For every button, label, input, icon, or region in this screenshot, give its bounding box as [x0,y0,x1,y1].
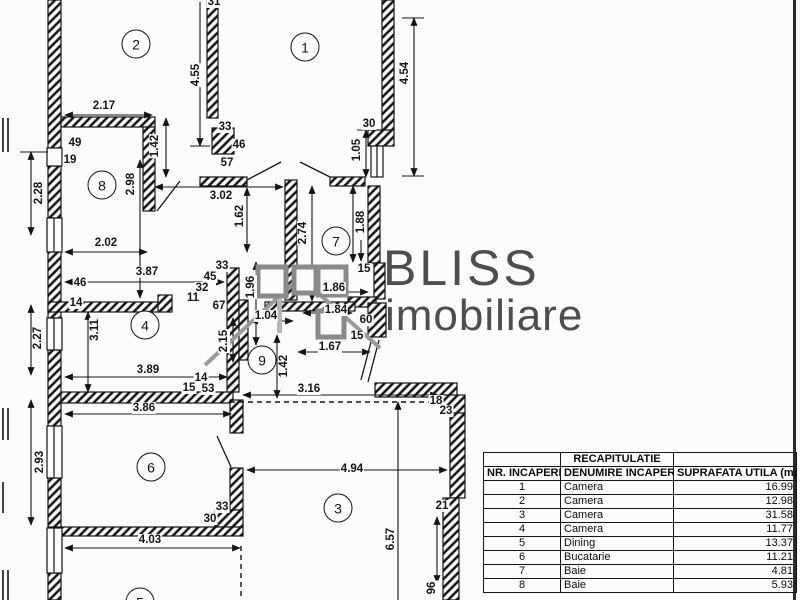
room-area-cell: 16.99 [674,481,797,495]
recap-table-row: 8Baie5.93 [484,579,797,593]
dimension-label: 4.03 [138,534,162,546]
dimension-label: 2.93 [34,450,46,474]
dimension-label: 49 [68,137,83,149]
dimension-label: 60 [359,314,374,326]
room-number-circle: 9 [248,346,277,375]
room-area-cell: 12.98 [674,495,797,509]
room-name-cell: Bucatarie [561,551,674,565]
dimension-label: 53 [201,383,216,395]
dimension-label: 46 [232,139,247,151]
logo-text-imobiliare: imobiliare [385,294,583,338]
dimension-label: 2.17 [92,100,116,112]
recap-table-row: 1Camera16.99 [484,481,797,495]
dimension-label: 21 [435,500,450,512]
room-area-cell: 5.93 [674,579,797,593]
col-header-nr: NR. INCAPERE [484,467,561,481]
dimension-label: 3.02 [209,190,233,202]
dimension-label: 1.96 [245,275,257,299]
dimension-label: 1.86 [322,282,346,294]
dimension-label: 31 [207,0,222,8]
dimension-label: 15 [357,263,372,275]
dimension-label: 46 [73,277,88,289]
dimension-label: 1.62 [234,204,246,228]
dimension-label: 1.88 [355,210,367,234]
dimension-label: 30 [362,118,377,130]
dimension-label: 2.28 [33,181,45,205]
dimension-label: 23 [439,405,454,417]
room-number-cell: 7 [484,565,561,579]
dimension-label: 2.98 [125,172,137,196]
floorplan-scan-page: BLISS imobiliare 314.554.542.1749191.423… [0,0,800,600]
recap-title-row: RECAPITULATIE [484,453,797,467]
dimension-label: 15 [182,382,197,394]
room-number-circle: 3 [324,494,353,523]
room-area-cell: 31.58 [674,509,797,523]
dimension-label: 2.15 [218,329,230,353]
recap-table-row: 6Bucatarie11.21 [484,551,797,565]
room-name-cell: Camera [561,509,674,523]
room-number-circle: 4 [131,311,160,340]
dimension-label: 3.16 [297,383,321,395]
dimension-label: 11 [186,292,200,304]
dimension-label: 6.57 [385,527,397,551]
room-number-cell: 8 [484,579,561,593]
dimension-label: 96 [426,581,438,596]
room-name-cell: Dining [561,537,674,551]
dimension-label: 14 [69,297,84,309]
room-name-cell: Camera [561,495,674,509]
room-number-cell: 6 [484,551,561,565]
recap-table-row: 5Dining13.37 [484,537,797,551]
dimension-label: 1.04 [254,310,278,322]
room-number-cell: 2 [484,495,561,509]
room-number-circle: 7 [322,227,351,256]
dimension-label: 33 [215,501,230,513]
room-area-cell: 13.37 [674,537,797,551]
recap-header-row: NR. INCAPERE DENUMIRE INCAPERE SUPRAFATA… [484,467,797,481]
col-header-name: DENUMIRE INCAPERE [561,467,674,481]
dimension-label: 1.84 [324,304,348,316]
dimension-label: 19 [63,154,78,166]
recap-table-row: 3Camera31.58 [484,509,797,523]
room-name-cell: Baie [561,579,674,593]
dimension-label: 3.86 [132,402,156,414]
dimension-label: 33 [218,121,233,133]
dimension-label: 1.42 [278,354,290,378]
room-number-cell: 3 [484,509,561,523]
dimension-label: 3.87 [135,266,159,278]
room-name-cell: Baie [561,565,674,579]
dimension-label: 15 [350,330,365,342]
room-number-cell: 4 [484,523,561,537]
dimension-label: 1.05 [351,138,363,162]
room-area-cell: 11.21 [674,551,797,565]
dimension-label: 2.27 [32,326,44,350]
recap-table: RECAPITULATIE NR. INCAPERE DENUMIRE INCA… [483,452,797,593]
room-number-circle: 2 [122,30,151,59]
dimension-label: 4.94 [340,463,364,475]
dimension-label: 4.55 [190,63,202,87]
room-number-cell: 5 [484,537,561,551]
col-header-area: SUPRAFATA UTILA (mp) [674,467,797,481]
edge-marks [3,118,8,600]
room-number-circle: 8 [88,171,117,200]
recap-table-row: 2Camera12.98 [484,495,797,509]
dimension-label: 57 [220,157,235,169]
room-name-cell: Camera [561,523,674,537]
logo-text-bliss: BLISS [383,243,540,293]
dimension-label: 4.54 [399,61,411,85]
room-number-cell: 1 [484,481,561,495]
dimension-label: 2.74 [297,221,309,245]
dimension-label: 2.02 [94,237,118,249]
dimension-label: 3.89 [136,364,160,376]
dimension-label: 67 [212,300,227,312]
recap-title: RECAPITULATIE [561,453,674,467]
dimension-label: 30 [203,513,218,525]
dimension-label: 3.11 [89,318,101,342]
dimension-label: 1.67 [318,341,342,353]
room-number-circle: 1 [291,33,320,62]
dimension-label: 1.42 [149,134,161,158]
room-number-circle: 6 [137,453,166,482]
room-area-cell: 4.81 [674,565,797,579]
room-area-cell: 11.77 [674,523,797,537]
recap-table-row: 4Camera11.77 [484,523,797,537]
room-name-cell: Camera [561,481,674,495]
recap-table-row: 7Baie4.81 [484,565,797,579]
